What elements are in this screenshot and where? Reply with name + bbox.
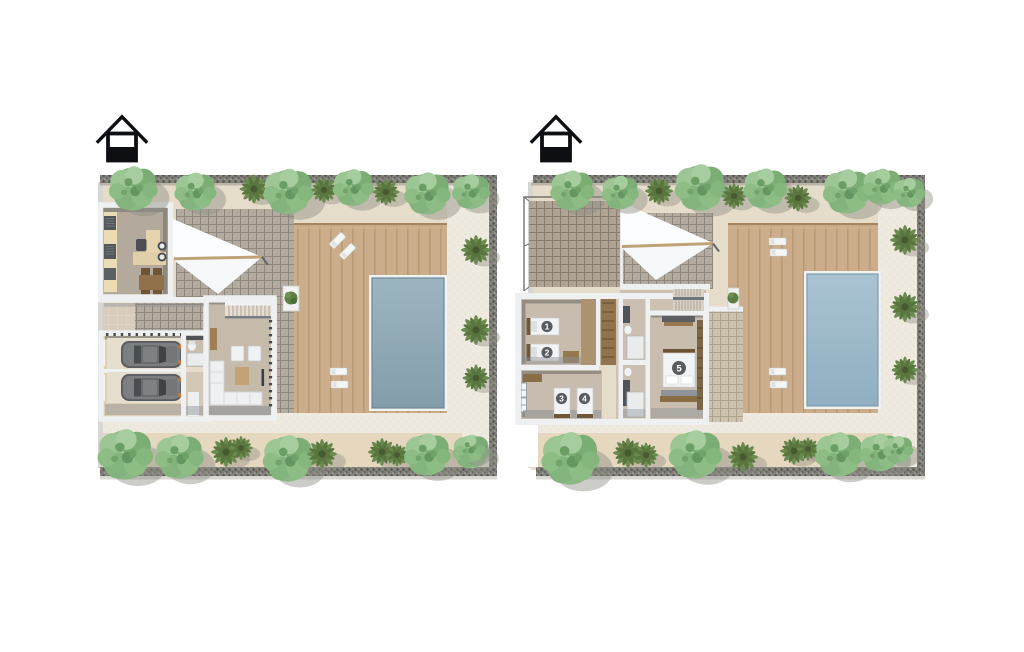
svg-text:5: 5 — [676, 364, 682, 375]
svg-text:1: 1 — [545, 322, 550, 332]
svg-text:2: 2 — [545, 348, 550, 358]
svg-text:4: 4 — [582, 394, 587, 404]
svg-text:3: 3 — [559, 394, 564, 404]
